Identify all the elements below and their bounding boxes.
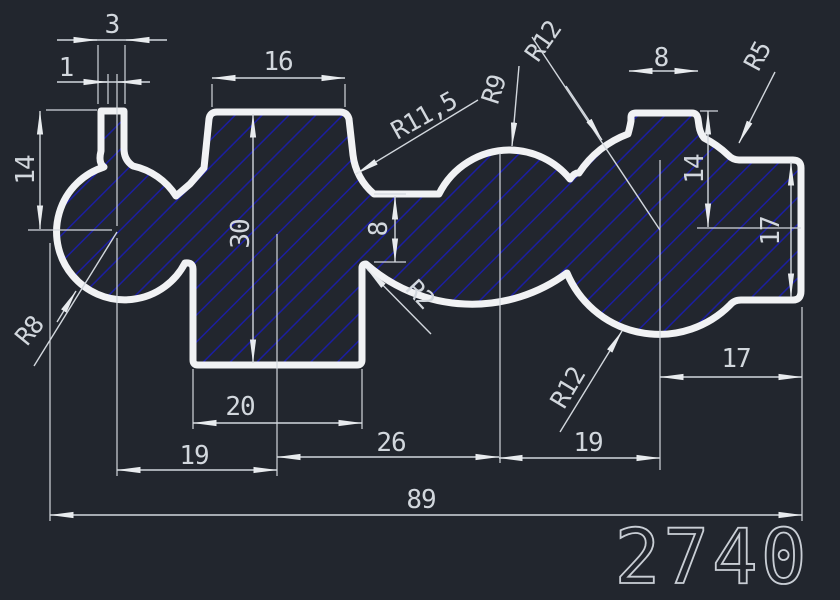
dim-14-left-label: 14 (11, 155, 41, 185)
dim-17-bottom-label: 17 (721, 344, 750, 374)
dim-89-label: 89 (406, 485, 435, 515)
dim-20-label: 20 (225, 392, 254, 422)
dim-19-right-label: 19 (573, 428, 602, 458)
dim-8-mid-label: 8 (364, 222, 394, 237)
cad-canvas[interactable]: 3 1 16 8 20 19 26 19 17 89 14 30 8 14 17… (0, 0, 840, 600)
part-number-label: 2740 (614, 512, 809, 600)
dim-26-label: 26 (376, 428, 405, 458)
dim-14-right-label: 14 (680, 154, 710, 184)
dim-30-label: 30 (226, 219, 256, 248)
dim-1-label: 1 (59, 53, 74, 83)
dim-8-top-label: 8 (654, 43, 669, 73)
dim-19-left-label: 19 (179, 441, 208, 471)
dim-17-right-label: 17 (756, 216, 786, 245)
dim-16-label: 16 (263, 47, 292, 77)
dim-3-label: 3 (105, 10, 120, 40)
